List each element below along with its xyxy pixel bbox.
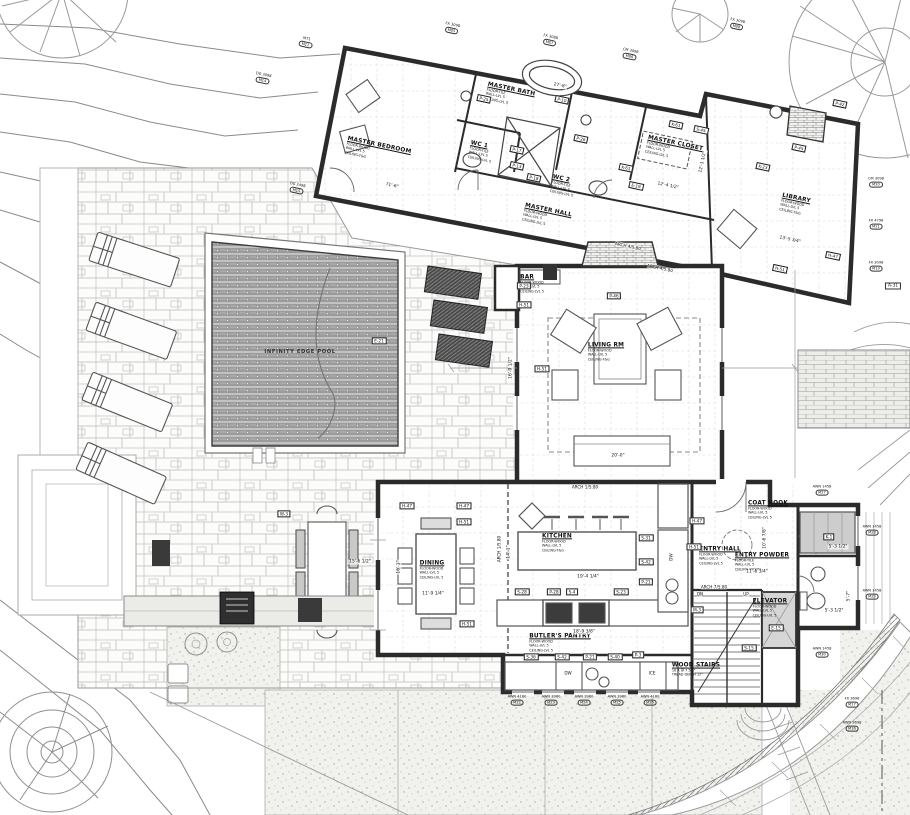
powder-sink [811,567,825,581]
dining-table [416,534,456,614]
fridge [658,484,688,528]
site-plan-drawing [0,0,910,815]
gravel-terrace [167,627,280,706]
bar-nook [495,266,519,310]
pool-step [266,448,275,463]
side-steps [866,512,890,624]
bbq-grill [220,592,254,624]
living-fireplace [582,242,658,266]
kitchen-side-counter [658,530,688,612]
patio-chair [168,686,188,703]
side-chair [552,370,578,400]
side-chair [655,370,681,400]
tree-top-small [672,0,728,42]
floor-plan-canvas: MASTER BEDROOM FLOOR-WOOD WALL-LVL 5 CEI… [0,0,910,815]
butlers-fixtures [505,662,678,690]
pool-step [253,448,262,463]
patio-chair [168,664,188,683]
library-fireplace [787,106,826,142]
powder-toilet [807,593,825,609]
tree-bottom-left [0,692,112,812]
outdoor-appliance [298,598,322,622]
sofa [574,436,670,466]
stone-retaining-wall [798,350,910,428]
pool-equipment [152,540,170,566]
library-fixture [770,106,782,118]
tree-top-left [0,0,128,58]
coat-bench [800,512,855,553]
kitchen-island [518,532,636,570]
